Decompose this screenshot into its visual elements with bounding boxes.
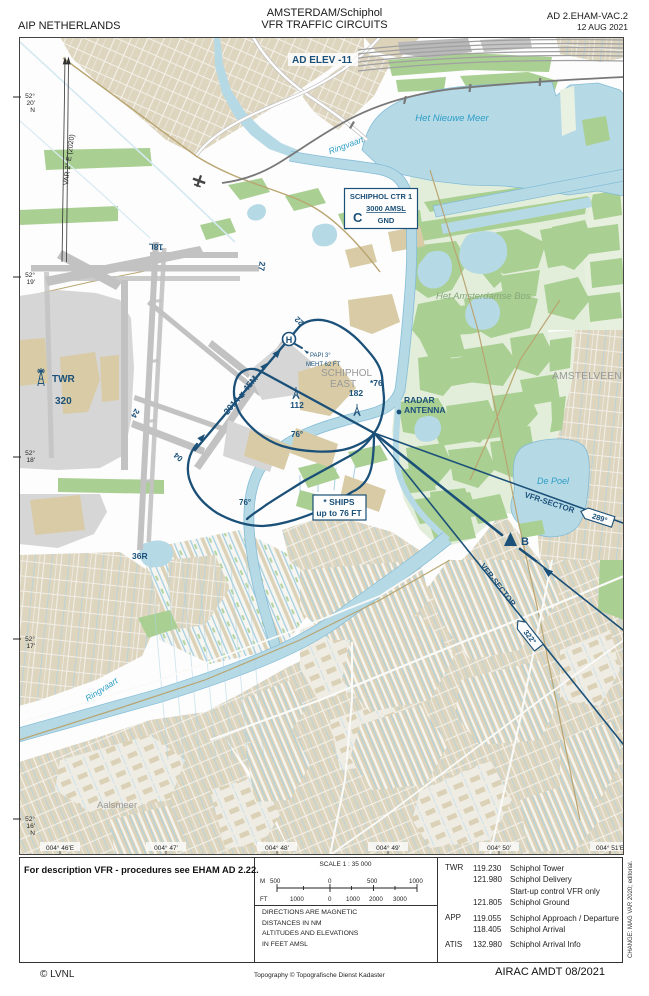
- svg-text:AD ELEV -11: AD ELEV -11: [292, 55, 352, 66]
- svg-text:B: B: [521, 536, 529, 548]
- svg-text:18L: 18L: [148, 242, 163, 253]
- svg-text:SCHIPHOL CTR 1: SCHIPHOL CTR 1: [350, 192, 412, 201]
- svg-text:TWR: TWR: [52, 374, 76, 385]
- svg-text:ANTENNA: ANTENNA: [404, 405, 446, 415]
- svg-text:27: 27: [256, 261, 267, 272]
- svg-text:* SHIPS: * SHIPS: [323, 497, 355, 507]
- svg-text:500: 500: [367, 878, 378, 885]
- svg-text:76°: 76°: [239, 498, 251, 507]
- svg-text:004° 46'E: 004° 46'E: [46, 844, 75, 852]
- svg-text:112: 112: [290, 400, 304, 410]
- svg-text:2000: 2000: [369, 896, 383, 903]
- svg-text:0: 0: [328, 878, 332, 885]
- svg-text:SCHIPHOL: SCHIPHOL: [321, 368, 373, 379]
- svg-text:Het Amsterdamse Bos: Het Amsterdamse Bos: [436, 291, 531, 302]
- svg-text:3000 AMSL: 3000 AMSL: [366, 204, 406, 213]
- svg-text:004° 48': 004° 48': [265, 844, 289, 852]
- svg-text:up to 76 FT: up to 76 FT: [316, 508, 362, 518]
- svg-text:Aalsmeer: Aalsmeer: [97, 800, 137, 811]
- svg-text:0: 0: [328, 896, 332, 903]
- svg-text:1000: 1000: [290, 896, 304, 903]
- svg-text:320: 320: [55, 396, 72, 407]
- svg-text:182: 182: [349, 388, 363, 398]
- svg-text:C: C: [353, 210, 363, 225]
- svg-text:004° 51'E: 004° 51'E: [596, 844, 624, 852]
- svg-text:500: 500: [270, 878, 281, 885]
- svg-text:FT: FT: [260, 896, 268, 903]
- svg-text:3000: 3000: [393, 896, 407, 903]
- svg-text:De Poel: De Poel: [537, 476, 570, 486]
- svg-text:M: M: [260, 878, 265, 885]
- svg-text:36R: 36R: [132, 551, 148, 561]
- svg-text:H: H: [286, 335, 293, 345]
- svg-text:1000: 1000: [346, 896, 360, 903]
- svg-text:Het Nieuwe Meer: Het Nieuwe Meer: [415, 113, 489, 124]
- svg-text:AMSTELVEEN: AMSTELVEEN: [552, 370, 622, 382]
- svg-text:1000: 1000: [409, 878, 423, 885]
- svg-text:004° 49': 004° 49': [376, 844, 400, 852]
- svg-text:RADAR: RADAR: [404, 395, 435, 405]
- svg-text:PAPI 3°: PAPI 3°: [310, 353, 331, 359]
- svg-text:*76: *76: [370, 378, 383, 388]
- svg-text:76°: 76°: [291, 430, 303, 439]
- svg-text:004° 47': 004° 47': [154, 844, 178, 852]
- svg-text:GND: GND: [378, 216, 395, 225]
- svg-text:004° 50': 004° 50': [487, 844, 511, 852]
